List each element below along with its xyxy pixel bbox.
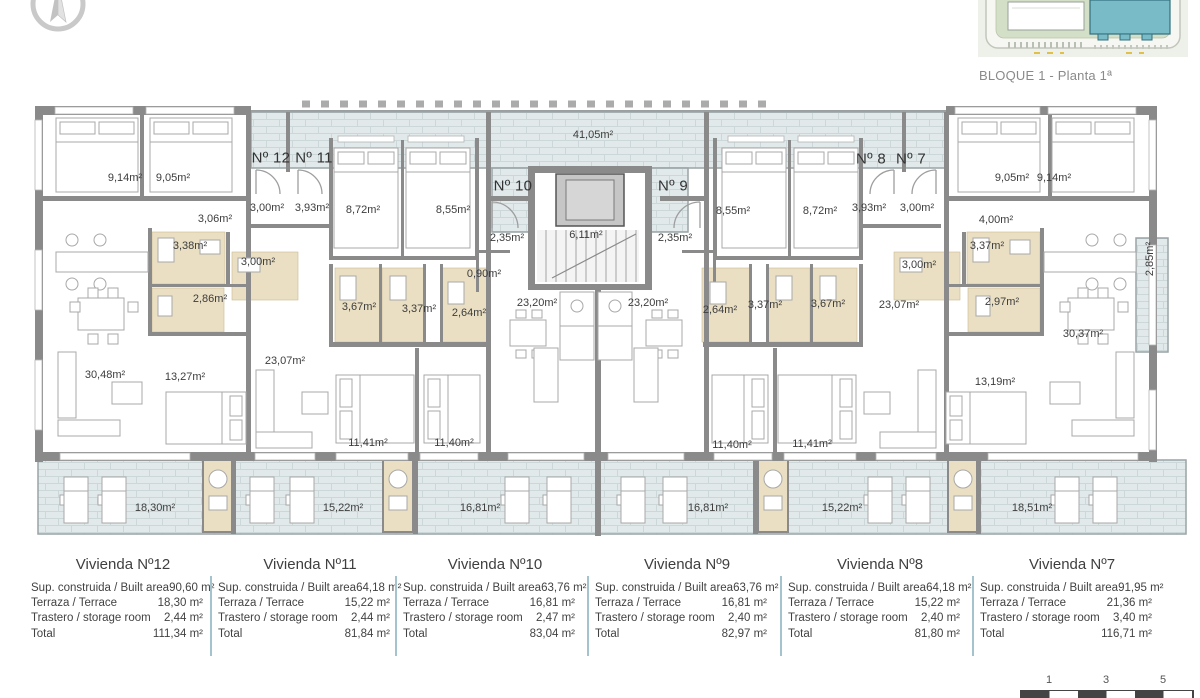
row-value: 82,97 m²	[722, 627, 767, 642]
table-row: Terraza / Terrace16,81 m²	[593, 596, 781, 611]
row-value: 83,04 m²	[530, 627, 575, 642]
row-value: 2,40 m²	[728, 611, 767, 626]
row-label: Sup. construida / Built area	[218, 581, 356, 596]
row-label: Terraza / Terrace	[218, 596, 304, 611]
column-divider	[587, 576, 589, 656]
row-value: 63,76 m²	[733, 581, 778, 596]
table-row: Sup. construida / Built area64,18 m²	[216, 581, 404, 596]
table-row: Trastero / storage room2,44 m²	[216, 611, 404, 626]
site-building-1-highlighted	[1090, 0, 1170, 40]
table-row: Terraza / Terrace16,81 m²	[401, 596, 589, 611]
unit-summary-column: Vivienda Nº12Sup. construida / Built are…	[29, 550, 217, 642]
row-value: 81,84 m²	[345, 627, 390, 642]
table-row: Trastero / storage room3,40 m²	[978, 611, 1166, 626]
table-row: Trastero / storage room2,40 m²	[786, 611, 974, 626]
unit-title: Vivienda Nº8	[786, 550, 974, 573]
row-value: 116,71 m²	[1101, 627, 1152, 642]
unit-summary-column: Vivienda Nº11Sup. construida / Built are…	[216, 550, 404, 642]
row-value: 2,44 m²	[351, 611, 390, 626]
floorplan-sheet: BLOQUE 1 - Planta 1ª	[0, 0, 1200, 698]
row-value: 2,40 m²	[921, 611, 960, 626]
table-row: Terraza / Terrace15,22 m²	[786, 596, 974, 611]
plan-caption: BLOQUE 1 - Planta 1ª	[979, 68, 1112, 83]
row-value: 64,18 m²	[926, 581, 971, 596]
row-label: Trastero / storage room	[218, 611, 338, 626]
table-row: Terraza / Terrace15,22 m²	[216, 596, 404, 611]
row-value: 111,34 m²	[153, 627, 203, 642]
row-label: Terraza / Terrace	[595, 596, 681, 611]
site-plan-thumbnail	[978, 0, 1188, 57]
table-row: Total111,34 m²	[29, 627, 217, 642]
site-building-2	[1008, 2, 1084, 30]
unit-summary-column: Vivienda Nº10Sup. construida / Built are…	[401, 550, 589, 642]
column-divider	[972, 576, 974, 656]
unit-title: Vivienda Nº9	[593, 550, 781, 573]
column-divider	[395, 576, 397, 656]
table-row: Trastero / storage room2,47 m²	[401, 611, 589, 626]
table-row: Total116,71 m²	[978, 627, 1166, 642]
column-divider	[210, 576, 212, 656]
table-row: Sup. construida / Built area90,60 m²	[29, 581, 217, 596]
unit-title: Vivienda Nº7	[978, 550, 1166, 573]
row-label: Terraza / Terrace	[788, 596, 874, 611]
table-row: Trastero / storage room2,40 m²	[593, 611, 781, 626]
table-row: Terraza / Terrace18,30 m²	[29, 596, 217, 611]
row-label: Total	[980, 627, 1004, 642]
table-row: Total82,97 m²	[593, 627, 781, 642]
table-row: Terraza / Terrace21,36 m²	[978, 596, 1166, 611]
table-row: Sup. construida / Built area64,18 m²	[786, 581, 974, 596]
row-value: 2,44 m²	[164, 611, 203, 626]
table-row: Trastero / storage room2,44 m²	[29, 611, 217, 626]
row-value: 15,22 m²	[915, 596, 960, 611]
row-label: Total	[595, 627, 619, 642]
row-label: Sup. construida / Built area	[595, 581, 733, 596]
row-label: Trastero / storage room	[31, 611, 151, 626]
row-label: Total	[788, 627, 812, 642]
row-label: Sup. construida / Built area	[403, 581, 541, 596]
row-value: 18,30 m²	[158, 596, 203, 611]
row-value: 16,81 m²	[722, 596, 767, 611]
row-label: Trastero / storage room	[595, 611, 715, 626]
table-row: Sup. construida / Built area63,76 m²	[593, 581, 781, 596]
table-row: Total83,04 m²	[401, 627, 589, 642]
row-label: Terraza / Terrace	[403, 596, 489, 611]
table-row: Total81,84 m²	[216, 627, 404, 642]
row-label: Sup. construida / Built area	[31, 581, 169, 596]
row-label: Trastero / storage room	[403, 611, 523, 626]
unit-title: Vivienda Nº11	[216, 550, 404, 573]
row-label: Sup. construida / Built area	[788, 581, 926, 596]
row-label: Terraza / Terrace	[980, 596, 1066, 611]
row-value: 3,40 m²	[1113, 611, 1152, 626]
row-value: 2,47 m²	[536, 611, 575, 626]
row-value: 21,36 m²	[1107, 596, 1152, 611]
row-value: 15,22 m²	[345, 596, 390, 611]
table-row: Sup. construida / Built area91,95 m²	[978, 581, 1166, 596]
row-label: Trastero / storage room	[788, 611, 908, 626]
row-label: Total	[31, 627, 55, 642]
table-row: Total81,80 m²	[786, 627, 974, 642]
row-label: Sup. construida / Built area	[980, 581, 1118, 596]
stair-core	[537, 174, 639, 282]
units-summary-table: Vivienda Nº12Sup. construida / Built are…	[0, 550, 1200, 658]
row-value: 63,76 m²	[541, 581, 586, 596]
table-row: Sup. construida / Built area63,76 m²	[401, 581, 589, 596]
row-label: Trastero / storage room	[980, 611, 1100, 626]
column-divider	[780, 576, 782, 656]
unit-summary-column: Vivienda Nº7Sup. construida / Built area…	[978, 550, 1166, 642]
row-value: 16,81 m²	[530, 596, 575, 611]
unit-summary-column: Vivienda Nº9Sup. construida / Built area…	[593, 550, 781, 642]
row-value: 90,60 m²	[169, 581, 214, 596]
unit-summary-column: Vivienda Nº8Sup. construida / Built area…	[786, 550, 974, 642]
row-value: 91,95 m²	[1118, 581, 1163, 596]
row-label: Total	[218, 627, 242, 642]
north-arrow-icon	[14, 0, 104, 45]
row-value: 81,80 m²	[915, 627, 960, 642]
unit-title: Vivienda Nº12	[29, 550, 217, 573]
row-label: Total	[403, 627, 427, 642]
unit-title: Vivienda Nº10	[401, 550, 589, 573]
row-label: Terraza / Terrace	[31, 596, 117, 611]
